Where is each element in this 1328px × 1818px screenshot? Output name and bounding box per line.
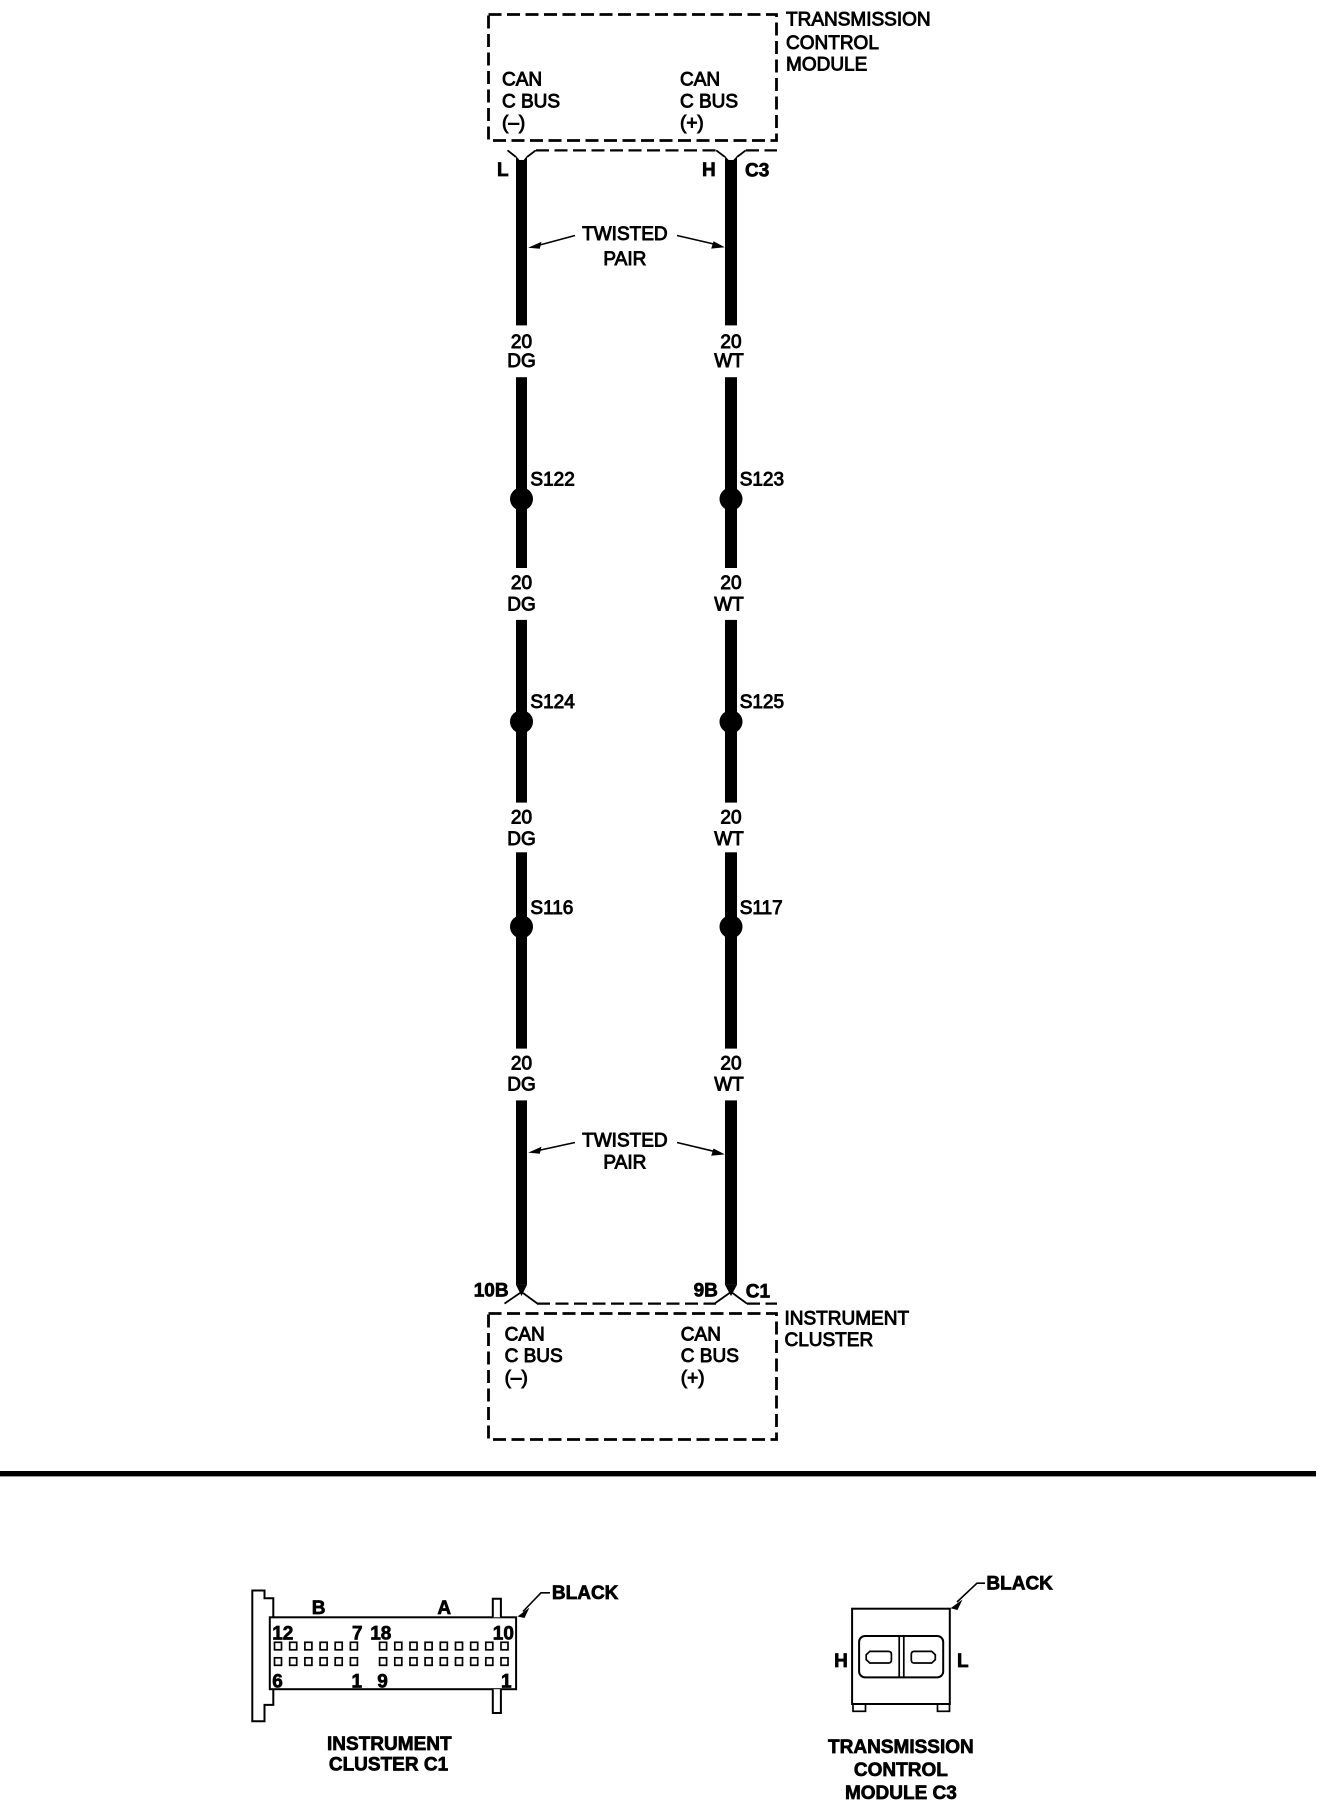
svg-text:MODULE C3: MODULE C3 bbox=[845, 1783, 957, 1804]
svg-text:20: 20 bbox=[511, 573, 532, 594]
svg-text:1: 1 bbox=[501, 1671, 512, 1692]
svg-text:BLACK: BLACK bbox=[552, 1583, 619, 1604]
svg-text:DG: DG bbox=[507, 829, 536, 850]
svg-text:6: 6 bbox=[272, 1671, 283, 1692]
svg-text:INSTRUMENT: INSTRUMENT bbox=[785, 1309, 910, 1330]
svg-text:S117: S117 bbox=[740, 898, 783, 919]
svg-text:DG: DG bbox=[507, 351, 536, 372]
svg-text:S116: S116 bbox=[530, 898, 573, 919]
svg-text:18: 18 bbox=[370, 1624, 391, 1645]
svg-text:TWISTED: TWISTED bbox=[582, 1131, 668, 1152]
svg-text:WT: WT bbox=[714, 351, 744, 372]
svg-text:CAN: CAN bbox=[505, 1325, 545, 1346]
svg-text:H: H bbox=[834, 1651, 848, 1672]
svg-text:1: 1 bbox=[352, 1671, 363, 1692]
svg-text:20: 20 bbox=[511, 1053, 532, 1074]
svg-text:(–): (–) bbox=[505, 1368, 528, 1389]
svg-text:20: 20 bbox=[720, 573, 741, 594]
svg-text:C BUS: C BUS bbox=[681, 1346, 739, 1367]
svg-text:INSTRUMENT: INSTRUMENT bbox=[327, 1734, 452, 1755]
svg-text:20: 20 bbox=[511, 332, 532, 353]
svg-text:L: L bbox=[957, 1651, 969, 1672]
svg-text:7: 7 bbox=[352, 1624, 363, 1645]
svg-text:C3: C3 bbox=[745, 161, 769, 182]
svg-text:L: L bbox=[497, 160, 509, 181]
svg-text:C BUS: C BUS bbox=[680, 92, 738, 113]
svg-text:(+): (+) bbox=[681, 1368, 705, 1389]
svg-text:(–): (–) bbox=[502, 113, 525, 134]
svg-text:PAIR: PAIR bbox=[603, 249, 646, 270]
svg-text:CLUSTER: CLUSTER bbox=[785, 1330, 874, 1351]
svg-text:S125: S125 bbox=[740, 692, 784, 713]
svg-text:20: 20 bbox=[720, 332, 741, 353]
svg-text:20: 20 bbox=[720, 808, 741, 829]
svg-text:9: 9 bbox=[377, 1671, 388, 1692]
svg-text:10: 10 bbox=[493, 1624, 514, 1645]
svg-text:S124: S124 bbox=[530, 692, 575, 713]
svg-text:(+): (+) bbox=[680, 113, 704, 134]
svg-text:BLACK: BLACK bbox=[986, 1574, 1053, 1595]
svg-text:WT: WT bbox=[714, 1075, 744, 1096]
svg-text:C BUS: C BUS bbox=[505, 1346, 563, 1367]
svg-text:B: B bbox=[312, 1598, 326, 1619]
svg-text:DG: DG bbox=[507, 594, 536, 615]
svg-text:9B: 9B bbox=[694, 1280, 718, 1301]
svg-text:20: 20 bbox=[720, 1053, 741, 1074]
svg-text:TWISTED: TWISTED bbox=[582, 224, 668, 245]
svg-text:CAN: CAN bbox=[502, 70, 542, 91]
svg-text:10B: 10B bbox=[474, 1280, 509, 1301]
svg-text:TRANSMISSION: TRANSMISSION bbox=[786, 10, 931, 31]
svg-text:S123: S123 bbox=[740, 470, 784, 491]
svg-text:C1: C1 bbox=[746, 1281, 771, 1302]
svg-text:CAN: CAN bbox=[680, 70, 720, 91]
svg-text:S122: S122 bbox=[530, 470, 574, 491]
svg-text:CONTROL: CONTROL bbox=[786, 33, 879, 54]
svg-text:CLUSTER C1: CLUSTER C1 bbox=[329, 1755, 449, 1776]
svg-text:H: H bbox=[702, 160, 716, 181]
svg-text:C BUS: C BUS bbox=[502, 92, 560, 113]
svg-text:WT: WT bbox=[714, 594, 744, 615]
svg-text:CONTROL: CONTROL bbox=[854, 1760, 948, 1781]
svg-text:CAN: CAN bbox=[681, 1325, 721, 1346]
svg-text:PAIR: PAIR bbox=[603, 1153, 646, 1174]
svg-text:DG: DG bbox=[507, 1075, 536, 1096]
svg-text:MODULE: MODULE bbox=[786, 54, 867, 75]
svg-text:A: A bbox=[437, 1598, 451, 1619]
svg-text:TRANSMISSION: TRANSMISSION bbox=[828, 1737, 974, 1758]
svg-text:12: 12 bbox=[272, 1624, 293, 1645]
svg-text:WT: WT bbox=[714, 829, 744, 850]
svg-text:20: 20 bbox=[511, 808, 532, 829]
